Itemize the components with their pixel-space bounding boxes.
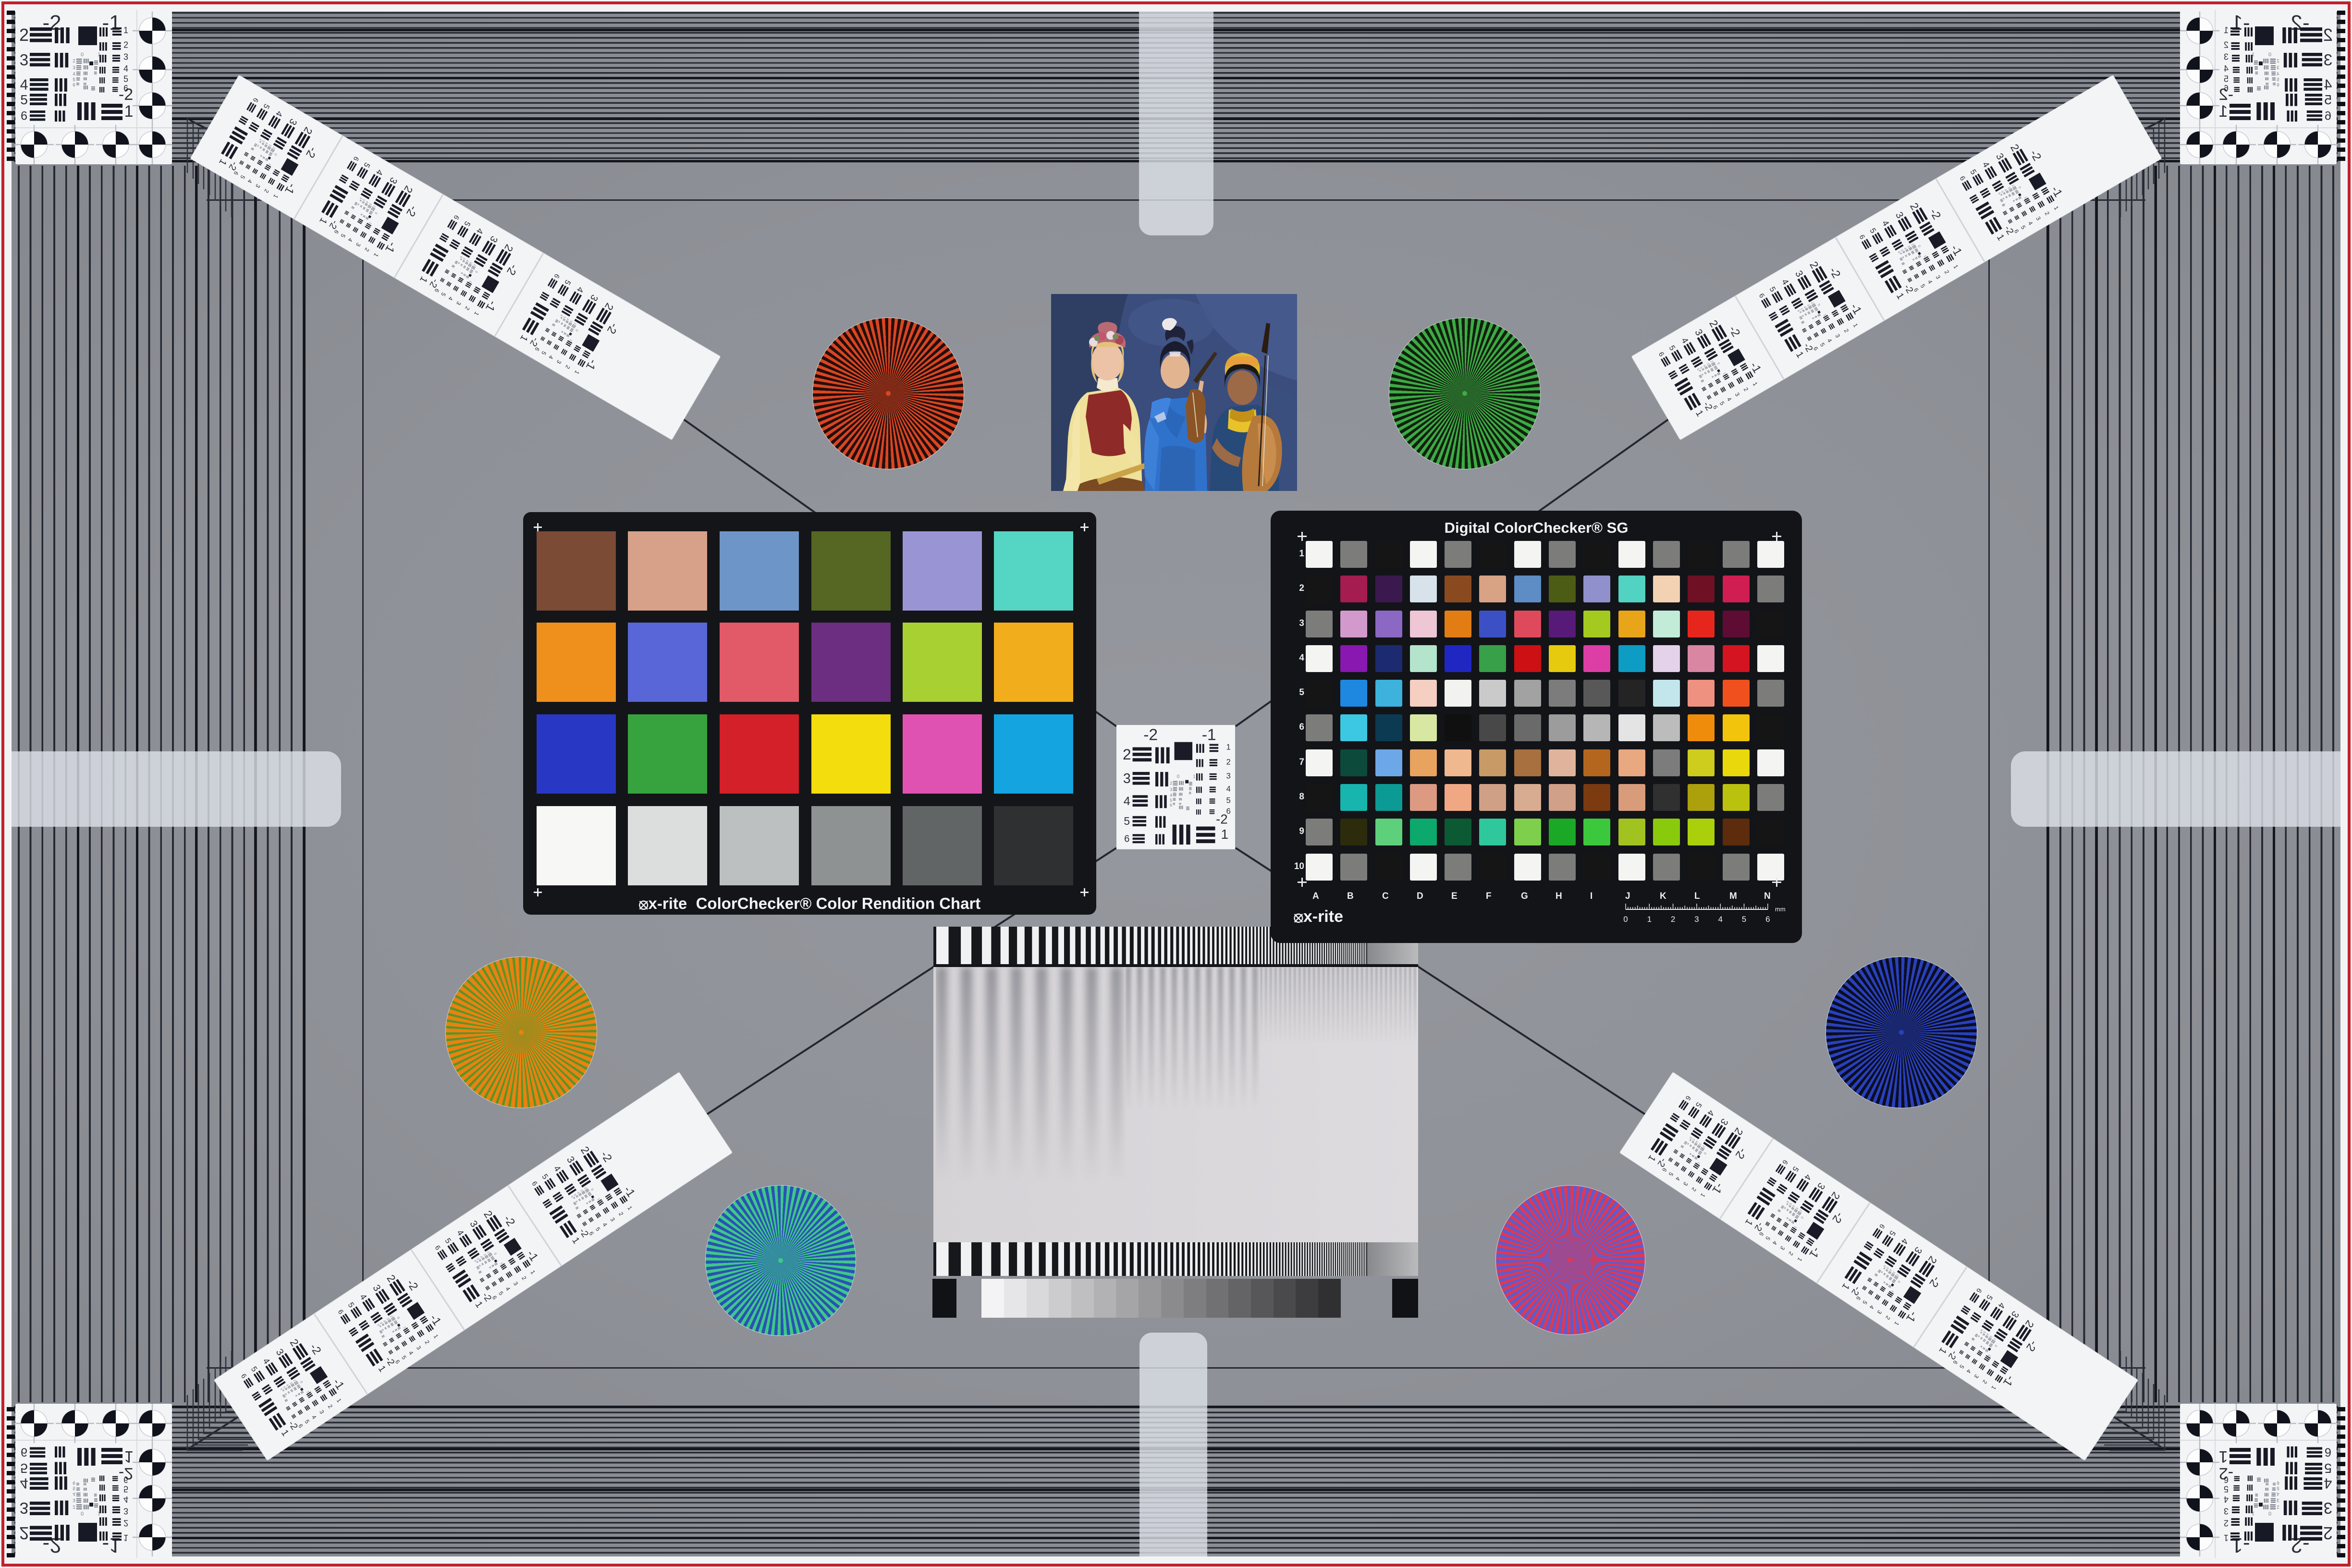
svg-text:6: 6 bbox=[1765, 915, 1770, 924]
svg-text:2: 2 bbox=[1671, 915, 1675, 924]
svg-text:3: 3 bbox=[1694, 915, 1699, 924]
svg-text:0: 0 bbox=[1624, 915, 1628, 924]
svg-text:mm: mm bbox=[1775, 906, 1786, 913]
svg-text:5: 5 bbox=[1742, 915, 1746, 924]
svg-text:4: 4 bbox=[1718, 915, 1722, 924]
svg-text:1: 1 bbox=[1647, 915, 1652, 924]
